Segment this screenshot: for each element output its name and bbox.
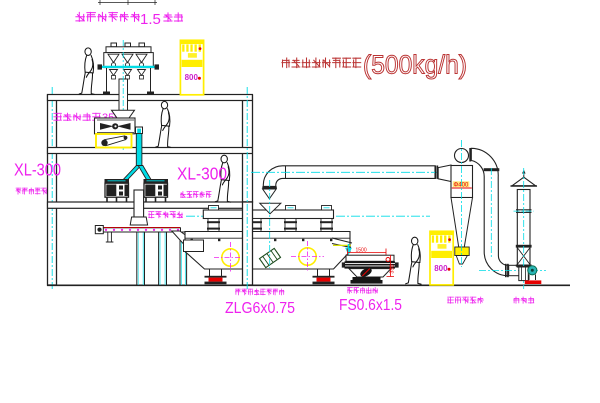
svg-text:1500: 1500	[356, 248, 367, 254]
svg-text:350: 350	[390, 264, 396, 273]
svg-text:1.5: 1.5	[140, 11, 161, 28]
svg-text:800: 800	[185, 73, 199, 82]
svg-text:FS0.6x1.5: FS0.6x1.5	[339, 297, 402, 314]
svg-text:XL-300: XL-300	[14, 160, 61, 180]
svg-text:800: 800	[434, 264, 448, 273]
svg-text:ZLG6x0.75: ZLG6x0.75	[225, 300, 295, 317]
svg-text:XL-300: XL-300	[177, 164, 227, 184]
svg-text:(500kg/h): (500kg/h)	[363, 52, 467, 80]
